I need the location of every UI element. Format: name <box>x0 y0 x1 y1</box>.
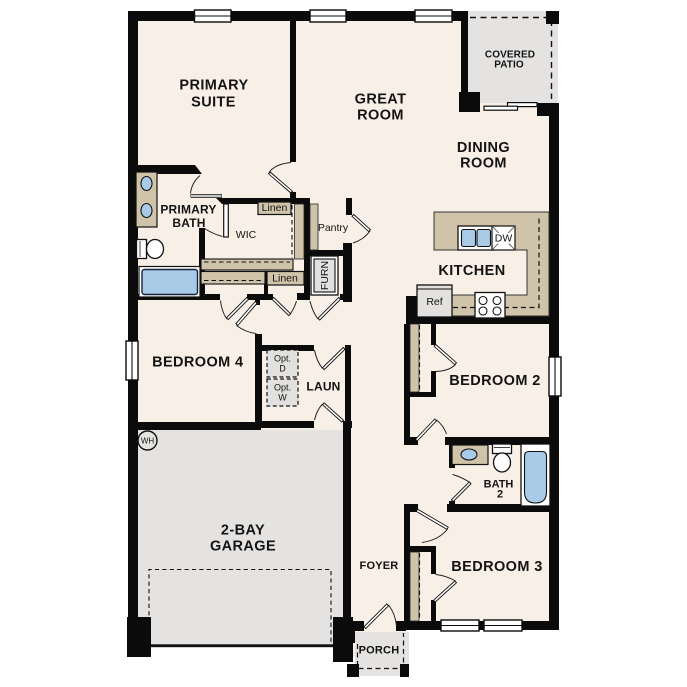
svg-text:Opt.: Opt. <box>274 354 291 364</box>
svg-text:DINING: DINING <box>457 140 510 156</box>
svg-text:PATIO: PATIO <box>494 60 524 71</box>
svg-text:FURN: FURN <box>319 261 331 290</box>
svg-text:SUITE: SUITE <box>191 95 236 111</box>
svg-text:Opt.: Opt. <box>274 383 291 393</box>
svg-text:FOYER: FOYER <box>360 560 399 572</box>
svg-text:GARAGE: GARAGE <box>210 539 276 555</box>
svg-text:ROOM: ROOM <box>460 156 507 172</box>
svg-text:DW: DW <box>495 233 513 245</box>
svg-text:BEDROOM 4: BEDROOM 4 <box>152 355 243 371</box>
svg-text:KITCHEN: KITCHEN <box>438 263 505 279</box>
svg-text:2: 2 <box>497 488 503 500</box>
svg-text:2-BAY: 2-BAY <box>221 523 265 539</box>
svg-text:PORCH: PORCH <box>359 645 400 657</box>
svg-text:BATH: BATH <box>172 216 205 230</box>
svg-text:Linen: Linen <box>272 272 298 284</box>
svg-text:GREAT: GREAT <box>355 92 407 108</box>
svg-text:BEDROOM 3: BEDROOM 3 <box>451 559 542 575</box>
svg-text:PRIMARY: PRIMARY <box>160 202 216 216</box>
svg-text:W: W <box>278 393 287 403</box>
svg-text:BEDROOM 2: BEDROOM 2 <box>449 373 540 389</box>
svg-text:WH: WH <box>141 437 155 446</box>
svg-text:WIC: WIC <box>236 229 257 241</box>
svg-text:ROOM: ROOM <box>357 108 404 124</box>
svg-text:Pantry: Pantry <box>318 222 349 234</box>
svg-text:D: D <box>279 364 286 374</box>
svg-text:PRIMARY: PRIMARY <box>179 78 248 94</box>
svg-text:Ref: Ref <box>426 296 442 308</box>
svg-text:Linen: Linen <box>262 202 288 214</box>
svg-text:LAUN: LAUN <box>306 380 340 394</box>
